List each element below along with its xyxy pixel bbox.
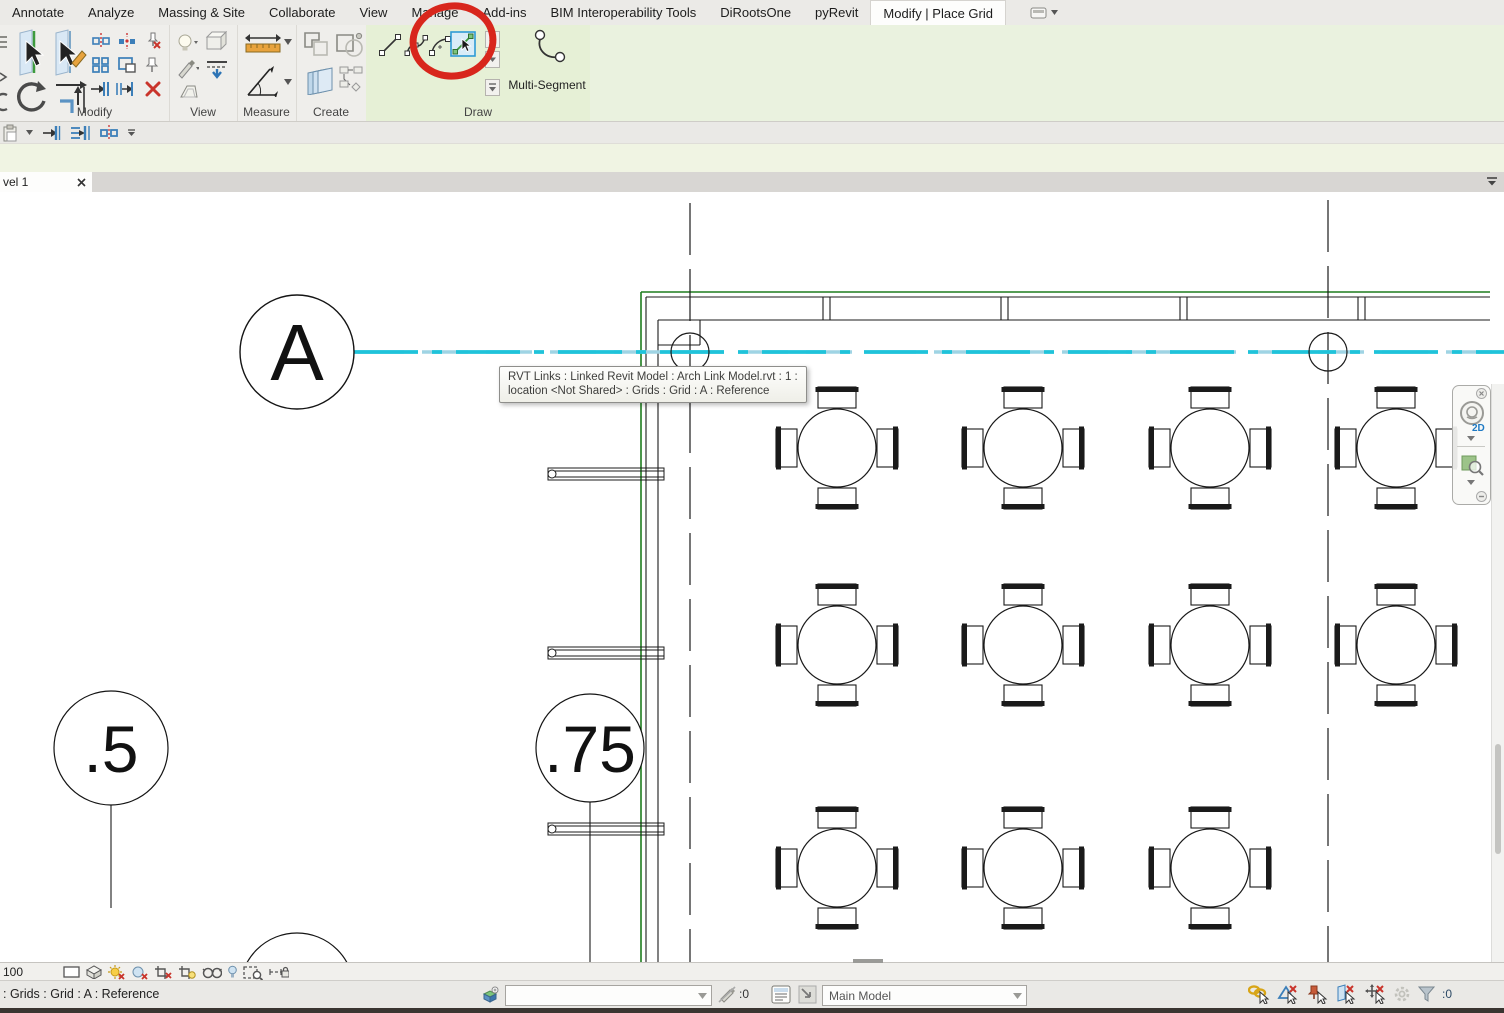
- panel-view: View: [169, 25, 238, 121]
- select-underlay-icon[interactable]: [1277, 984, 1299, 1004]
- worksharing-display-icon[interactable]: [243, 965, 263, 980]
- ribbon: Modify View Measure Create: [0, 25, 1504, 122]
- chevron-down-icon: [1051, 10, 1058, 15]
- angle-dimension-icon[interactable]: [246, 65, 280, 97]
- create-group-icon[interactable]: [302, 30, 330, 60]
- grid-bubble-partial: [240, 933, 354, 962]
- table-with-chairs[interactable]: [776, 387, 898, 509]
- multi-segment-label: Multi-Segment: [506, 78, 588, 92]
- editable-only-icon[interactable]: [718, 986, 736, 1003]
- secondary-toolbar: [0, 122, 1504, 143]
- grid-bubble-half[interactable]: .5: [54, 691, 168, 908]
- tab-analyze[interactable]: Analyze: [76, 0, 146, 25]
- mullion-ticks: [823, 297, 1365, 320]
- edit-boundary-tool[interactable]: [52, 29, 88, 77]
- filter-count-label: :0: [1442, 987, 1452, 1001]
- select-pinned-icon[interactable]: [1306, 984, 1328, 1004]
- table-with-chairs[interactable]: [962, 584, 1084, 706]
- navigation-bar: 2D: [1452, 385, 1491, 505]
- tab-pyrevit[interactable]: pyRevit: [803, 0, 870, 25]
- visual-style-icon[interactable]: [86, 965, 102, 979]
- horizontal-scrollbar-thumb[interactable]: [853, 959, 883, 963]
- paintbrush-icon[interactable]: [177, 59, 199, 79]
- angle-dropdown-arrow[interactable]: [284, 79, 292, 85]
- panel-measure: Measure: [237, 25, 297, 121]
- array-icon[interactable]: [92, 57, 110, 73]
- override-graphics-icon[interactable]: [205, 59, 229, 79]
- constraints-lock-icon[interactable]: [269, 965, 289, 979]
- trim-corner-icon[interactable]: [90, 81, 110, 97]
- table-with-chairs[interactable]: [962, 807, 1084, 929]
- window-bottom-edge: [0, 1008, 1504, 1013]
- tab-annotate[interactable]: Annotate: [0, 0, 76, 25]
- cut-profile-icon[interactable]: [99, 125, 119, 141]
- view-tab-list-icon[interactable]: [1486, 177, 1498, 186]
- zoom-tool-icon[interactable]: [1460, 452, 1484, 476]
- design-option-dropdown-arrow[interactable]: [1013, 993, 1022, 999]
- grid-reference-tooltip: RVT Links : Linked Revit Model : Arch Li…: [499, 366, 807, 403]
- measure-distance-icon[interactable]: [244, 33, 282, 55]
- draw-scroll-up[interactable]: [485, 31, 500, 48]
- workset-selector[interactable]: [505, 985, 712, 1006]
- wheel-dropdown-arrow[interactable]: [1467, 436, 1475, 441]
- panel-draw: Multi-Segment Draw: [366, 25, 591, 121]
- lightbulb-icon[interactable]: [177, 33, 199, 53]
- navbar-minimize-icon[interactable]: [1476, 491, 1487, 502]
- tab-collaborate[interactable]: Collaborate: [257, 0, 348, 25]
- panel-label-modify: Modify: [20, 105, 169, 119]
- array-diagram-icon[interactable]: [338, 65, 364, 95]
- active-model-label: Main Model: [829, 989, 891, 1003]
- crop-view-icon[interactable]: [154, 965, 172, 980]
- measure-dropdown-arrow[interactable]: [284, 39, 292, 45]
- tab-view[interactable]: View: [348, 0, 400, 25]
- hide-elements-icon[interactable]: [205, 31, 227, 53]
- draw-spline-tool[interactable]: [404, 33, 428, 57]
- editable-count-label: :0: [739, 987, 749, 1001]
- table-with-chairs[interactable]: [962, 387, 1084, 509]
- tab-massing-site[interactable]: Massing & Site: [146, 0, 257, 25]
- floorplan-svg: A .5 .75: [0, 192, 1504, 962]
- drawing-canvas[interactable]: A .5 .75 2D: [0, 192, 1504, 962]
- tab-add-ins[interactable]: Add-ins: [470, 0, 538, 25]
- pin-icon[interactable]: [144, 56, 160, 74]
- view-scale-label[interactable]: 100: [3, 965, 23, 979]
- select-links-icon[interactable]: [1248, 984, 1270, 1004]
- view-tab-bar: vel 1: [0, 172, 1504, 192]
- table-with-chairs[interactable]: [1149, 584, 1271, 706]
- multi-segment-button[interactable]: Multi-Segment: [506, 29, 588, 92]
- tab-dirootsone[interactable]: DiRootsOne: [708, 0, 803, 25]
- panel-label-create: Create: [296, 105, 366, 119]
- paste-icon[interactable]: [2, 124, 18, 142]
- view-tab-level1[interactable]: vel 1: [0, 172, 92, 192]
- shadows-icon[interactable]: [131, 965, 148, 980]
- navbar-2d-label: 2D: [1472, 423, 1485, 434]
- close-view-tab-icon[interactable]: [77, 178, 86, 187]
- workset-dropdown-arrow[interactable]: [698, 993, 707, 999]
- ribbon-contextual-fill: [590, 25, 1504, 121]
- ribbon-state-icon: [1030, 7, 1048, 19]
- table-with-chairs[interactable]: [1149, 807, 1271, 929]
- panel-label-measure: Measure: [237, 105, 296, 119]
- grid-label-a: A: [270, 308, 324, 397]
- table-with-chairs[interactable]: [1335, 387, 1457, 509]
- load-family-icon[interactable]: [304, 65, 334, 95]
- unpin-icon[interactable]: [144, 31, 162, 49]
- paste-dropdown-arrow[interactable]: [26, 130, 33, 135]
- grid-label-half: .5: [83, 712, 138, 786]
- reveal-hidden-icon[interactable]: [228, 965, 237, 979]
- delete-icon[interactable]: [145, 81, 161, 97]
- draw-arc-tool[interactable]: [428, 33, 452, 57]
- floorplan-tables: [776, 387, 1457, 929]
- offset-icon[interactable]: [115, 81, 135, 97]
- vertical-scrollbar[interactable]: [1491, 384, 1504, 962]
- table-with-chairs[interactable]: [776, 807, 898, 929]
- wall-join-icon[interactable]: [41, 125, 61, 141]
- zoom-dropdown-arrow[interactable]: [1467, 480, 1475, 485]
- select-by-face-icon[interactable]: [1335, 984, 1357, 1004]
- panel-create: Create: [296, 25, 367, 121]
- draw-line-tool[interactable]: [378, 33, 402, 57]
- temporary-hide-isolate-icon[interactable]: [202, 966, 222, 979]
- linework-icon[interactable]: [179, 83, 199, 101]
- view-tab-label: vel 1: [3, 175, 28, 189]
- draw-gallery-expand[interactable]: [485, 79, 500, 96]
- tab-modify-place-grid[interactable]: Modify | Place Grid: [870, 0, 1006, 25]
- ribbon-tab-bar: Annotate Analyze Massing & Site Collabor…: [0, 0, 1504, 25]
- cut-geometry-icon[interactable]: [92, 33, 110, 49]
- panel-modify: Modify: [0, 25, 170, 121]
- view-control-bar: 100: [0, 962, 1504, 981]
- table-with-chairs[interactable]: [776, 584, 898, 706]
- pick-lines-tool[interactable]: [450, 31, 476, 57]
- tooltip-line-1: RVT Links : Linked Revit Model : Arch Li…: [508, 370, 798, 384]
- select-cursor-tool[interactable]: [14, 29, 48, 77]
- settings-gear-icon[interactable]: [1393, 985, 1411, 1003]
- design-option-selector[interactable]: Main Model: [822, 985, 1027, 1006]
- sun-path-icon[interactable]: [108, 965, 125, 980]
- scale-icon[interactable]: [118, 57, 136, 73]
- navbar-close-icon[interactable]: [1476, 388, 1487, 399]
- panel-label-draw: Draw: [366, 105, 590, 119]
- drag-on-selection-icon[interactable]: [1364, 984, 1386, 1004]
- panel-label-view: View: [169, 105, 237, 119]
- multi-segment-icon: [527, 29, 567, 69]
- create-similar-icon[interactable]: [334, 30, 364, 60]
- revit-window: Annotate Analyze Massing & Site Collabor…: [0, 0, 1504, 1013]
- tab-bim-interop[interactable]: BIM Interoperability Tools: [539, 0, 709, 25]
- split-element-icon[interactable]: [118, 33, 136, 49]
- clipped-edge-icons: [0, 33, 8, 113]
- options-bar: [0, 143, 1504, 173]
- draw-scroll-down[interactable]: [485, 51, 500, 68]
- tooltip-line-2: location <Not Shared> : Grids : Grid : A…: [508, 384, 798, 398]
- toolbar-collapse-chevron[interactable]: [127, 129, 136, 137]
- design-options-icon[interactable]: [771, 985, 791, 1004]
- tab-manage[interactable]: Manage: [399, 0, 470, 25]
- scrollbar-thumb[interactable]: [1495, 744, 1501, 854]
- worksets-icon: [482, 986, 499, 1003]
- table-with-chairs[interactable]: [1149, 387, 1271, 509]
- status-bar: : Grids : Grid : A : Reference :0 Main M…: [0, 980, 1504, 1009]
- grid-label-three-quarter: .75: [544, 712, 636, 786]
- beam-join-icon[interactable]: [69, 125, 91, 141]
- active-only-icon[interactable]: [798, 985, 817, 1004]
- table-with-chairs[interactable]: [1335, 584, 1457, 706]
- status-selection-text: : Grids : Grid : A : Reference: [3, 987, 159, 1001]
- crop-region-visibility-icon[interactable]: [178, 965, 196, 980]
- detail-level-icon[interactable]: [63, 966, 80, 978]
- filter-icon[interactable]: [1418, 986, 1435, 1003]
- ribbon-display-toggle[interactable]: [1024, 0, 1064, 25]
- navbar-separator: [1457, 446, 1485, 447]
- grid-bubble-a[interactable]: A: [240, 295, 354, 409]
